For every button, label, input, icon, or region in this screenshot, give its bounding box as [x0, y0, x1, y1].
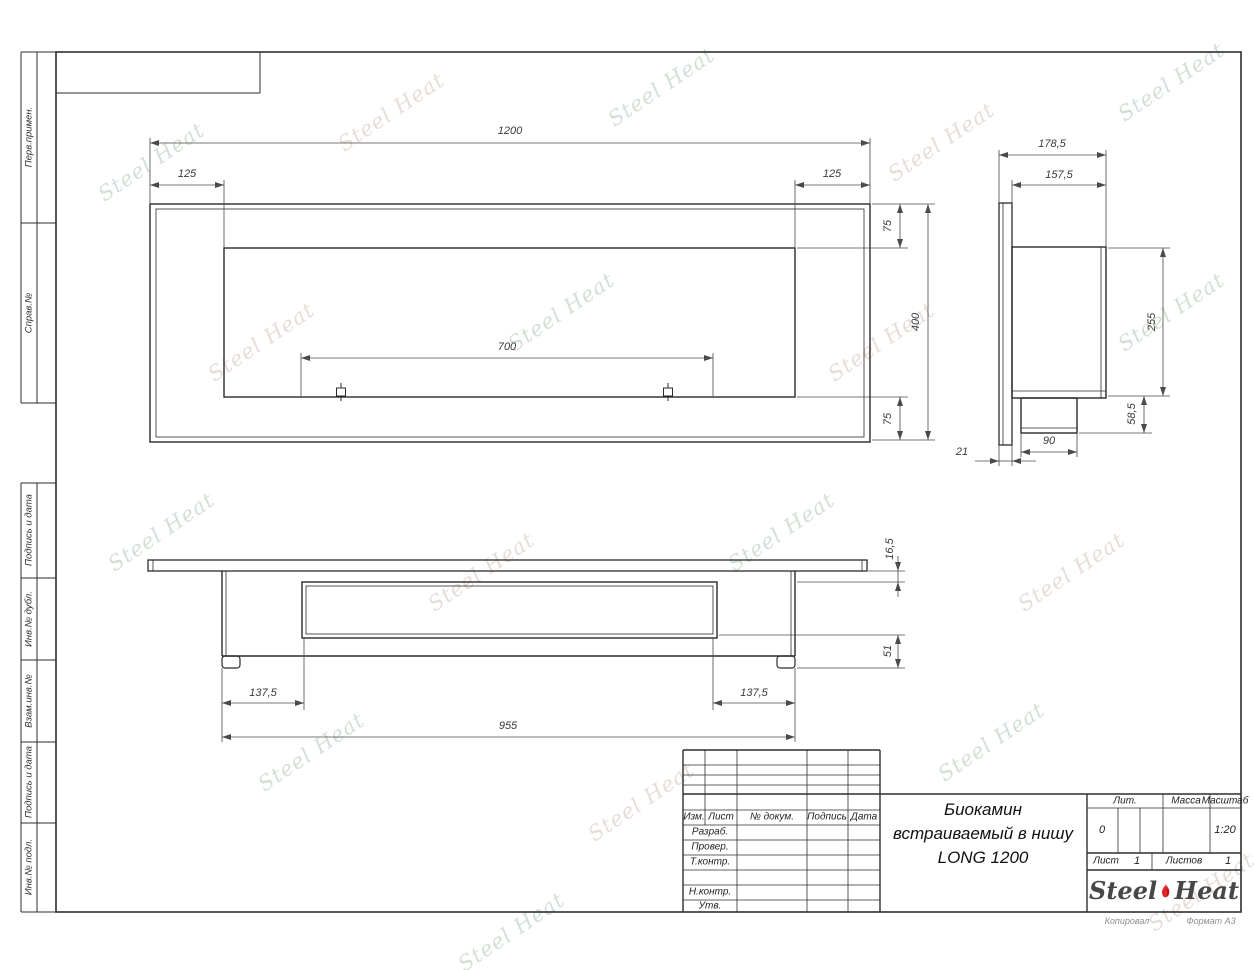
drawing-sheet: Steel Heat Steel Heat Steel Heat Steel H…	[0, 0, 1255, 970]
logo-heat-text: Heat	[1174, 879, 1239, 903]
margin-label-sprav-no: Справ.№	[24, 293, 35, 334]
dim-21: 21	[956, 446, 968, 458]
tb-razrab: Разраб.	[692, 827, 728, 838]
dim-178-5: 178,5	[1038, 138, 1066, 150]
drawing-title-line-1: Биокамин	[944, 800, 1022, 820]
tb-massa-label: Масса	[1171, 796, 1201, 807]
tb-list: Лист	[708, 812, 734, 823]
footer-kopiroval: Копировал	[1105, 916, 1150, 926]
bottom-view-dimensions	[222, 556, 905, 742]
front-view-dimensions	[150, 138, 935, 440]
burner-clip	[337, 383, 673, 401]
left-foot	[222, 656, 240, 668]
side-view-dimensions	[975, 150, 1170, 466]
tb-lit-value: 0	[1099, 824, 1105, 836]
drawing-title-line-3: LONG 1200	[938, 848, 1029, 868]
dim-90: 90	[1043, 435, 1055, 447]
dim-137-5-right: 137,5	[740, 687, 768, 699]
margin-label-vzam-inv: Взам.инв.№	[24, 674, 35, 727]
dim-125-left: 125	[178, 168, 196, 180]
footer-format: Формат А3	[1186, 916, 1235, 926]
dim-58-5: 58,5	[1126, 403, 1138, 424]
tb-prover: Провер.	[691, 842, 728, 853]
dim-137-5-left: 137,5	[249, 687, 277, 699]
side-view	[975, 150, 1170, 466]
margin-label-inv-podl: Инв.№ подл.	[24, 839, 35, 895]
logo-steel-text: Steel	[1089, 879, 1157, 903]
dim-955: 955	[499, 720, 517, 732]
dim-255: 255	[1146, 313, 1158, 331]
dim-700: 700	[498, 341, 516, 353]
tb-tkontr: Т.контр.	[690, 857, 730, 868]
dim-125-right: 125	[823, 168, 841, 180]
dim-400: 400	[910, 313, 922, 331]
bottom-view	[148, 556, 905, 742]
dim-75-bottom: 75	[882, 413, 894, 425]
margin-label-podpis-data-2: Подпись и дата	[24, 746, 35, 818]
tb-utv: Утв.	[699, 901, 722, 912]
dim-51: 51	[882, 645, 894, 657]
margin-label-podpis-data-1: Подпись и дата	[24, 494, 35, 566]
drawing-title-line-2: встраиваемый в нишу	[893, 824, 1073, 844]
corner-stamp	[56, 52, 260, 93]
tb-izm: Изм.	[683, 812, 704, 823]
tb-scale-label: Масштаб	[1202, 796, 1249, 807]
tb-nkontr: Н.контр.	[689, 887, 731, 898]
tb-sheets-label: Листов	[1166, 856, 1202, 867]
margin-label-perv-primen: Перв.примен.	[24, 107, 35, 168]
tb-sign: Подпись	[807, 812, 847, 823]
sheet-frame	[21, 52, 1241, 912]
dim-75-top: 75	[882, 220, 894, 232]
dim-1200: 1200	[498, 125, 522, 137]
tb-scale-value: 1:20	[1214, 824, 1235, 836]
dim-157-5: 157,5	[1045, 169, 1073, 181]
steelheat-logo: Steel Heat	[1089, 871, 1239, 911]
tb-sheet-label: Лист	[1093, 856, 1119, 867]
dim-16-5: 16,5	[884, 538, 896, 559]
tb-lit-label: Лит.	[1113, 796, 1136, 807]
front-view	[150, 138, 935, 442]
tb-sheet-value: 1	[1134, 855, 1140, 867]
tb-date: Дата	[851, 812, 877, 823]
right-foot	[777, 656, 795, 668]
flame-icon	[1160, 877, 1171, 905]
tb-sheets-value: 1	[1225, 855, 1231, 867]
margin-label-inv-dubl: Инв.№ дубл.	[24, 591, 35, 647]
tb-doc: № докум.	[750, 812, 794, 823]
